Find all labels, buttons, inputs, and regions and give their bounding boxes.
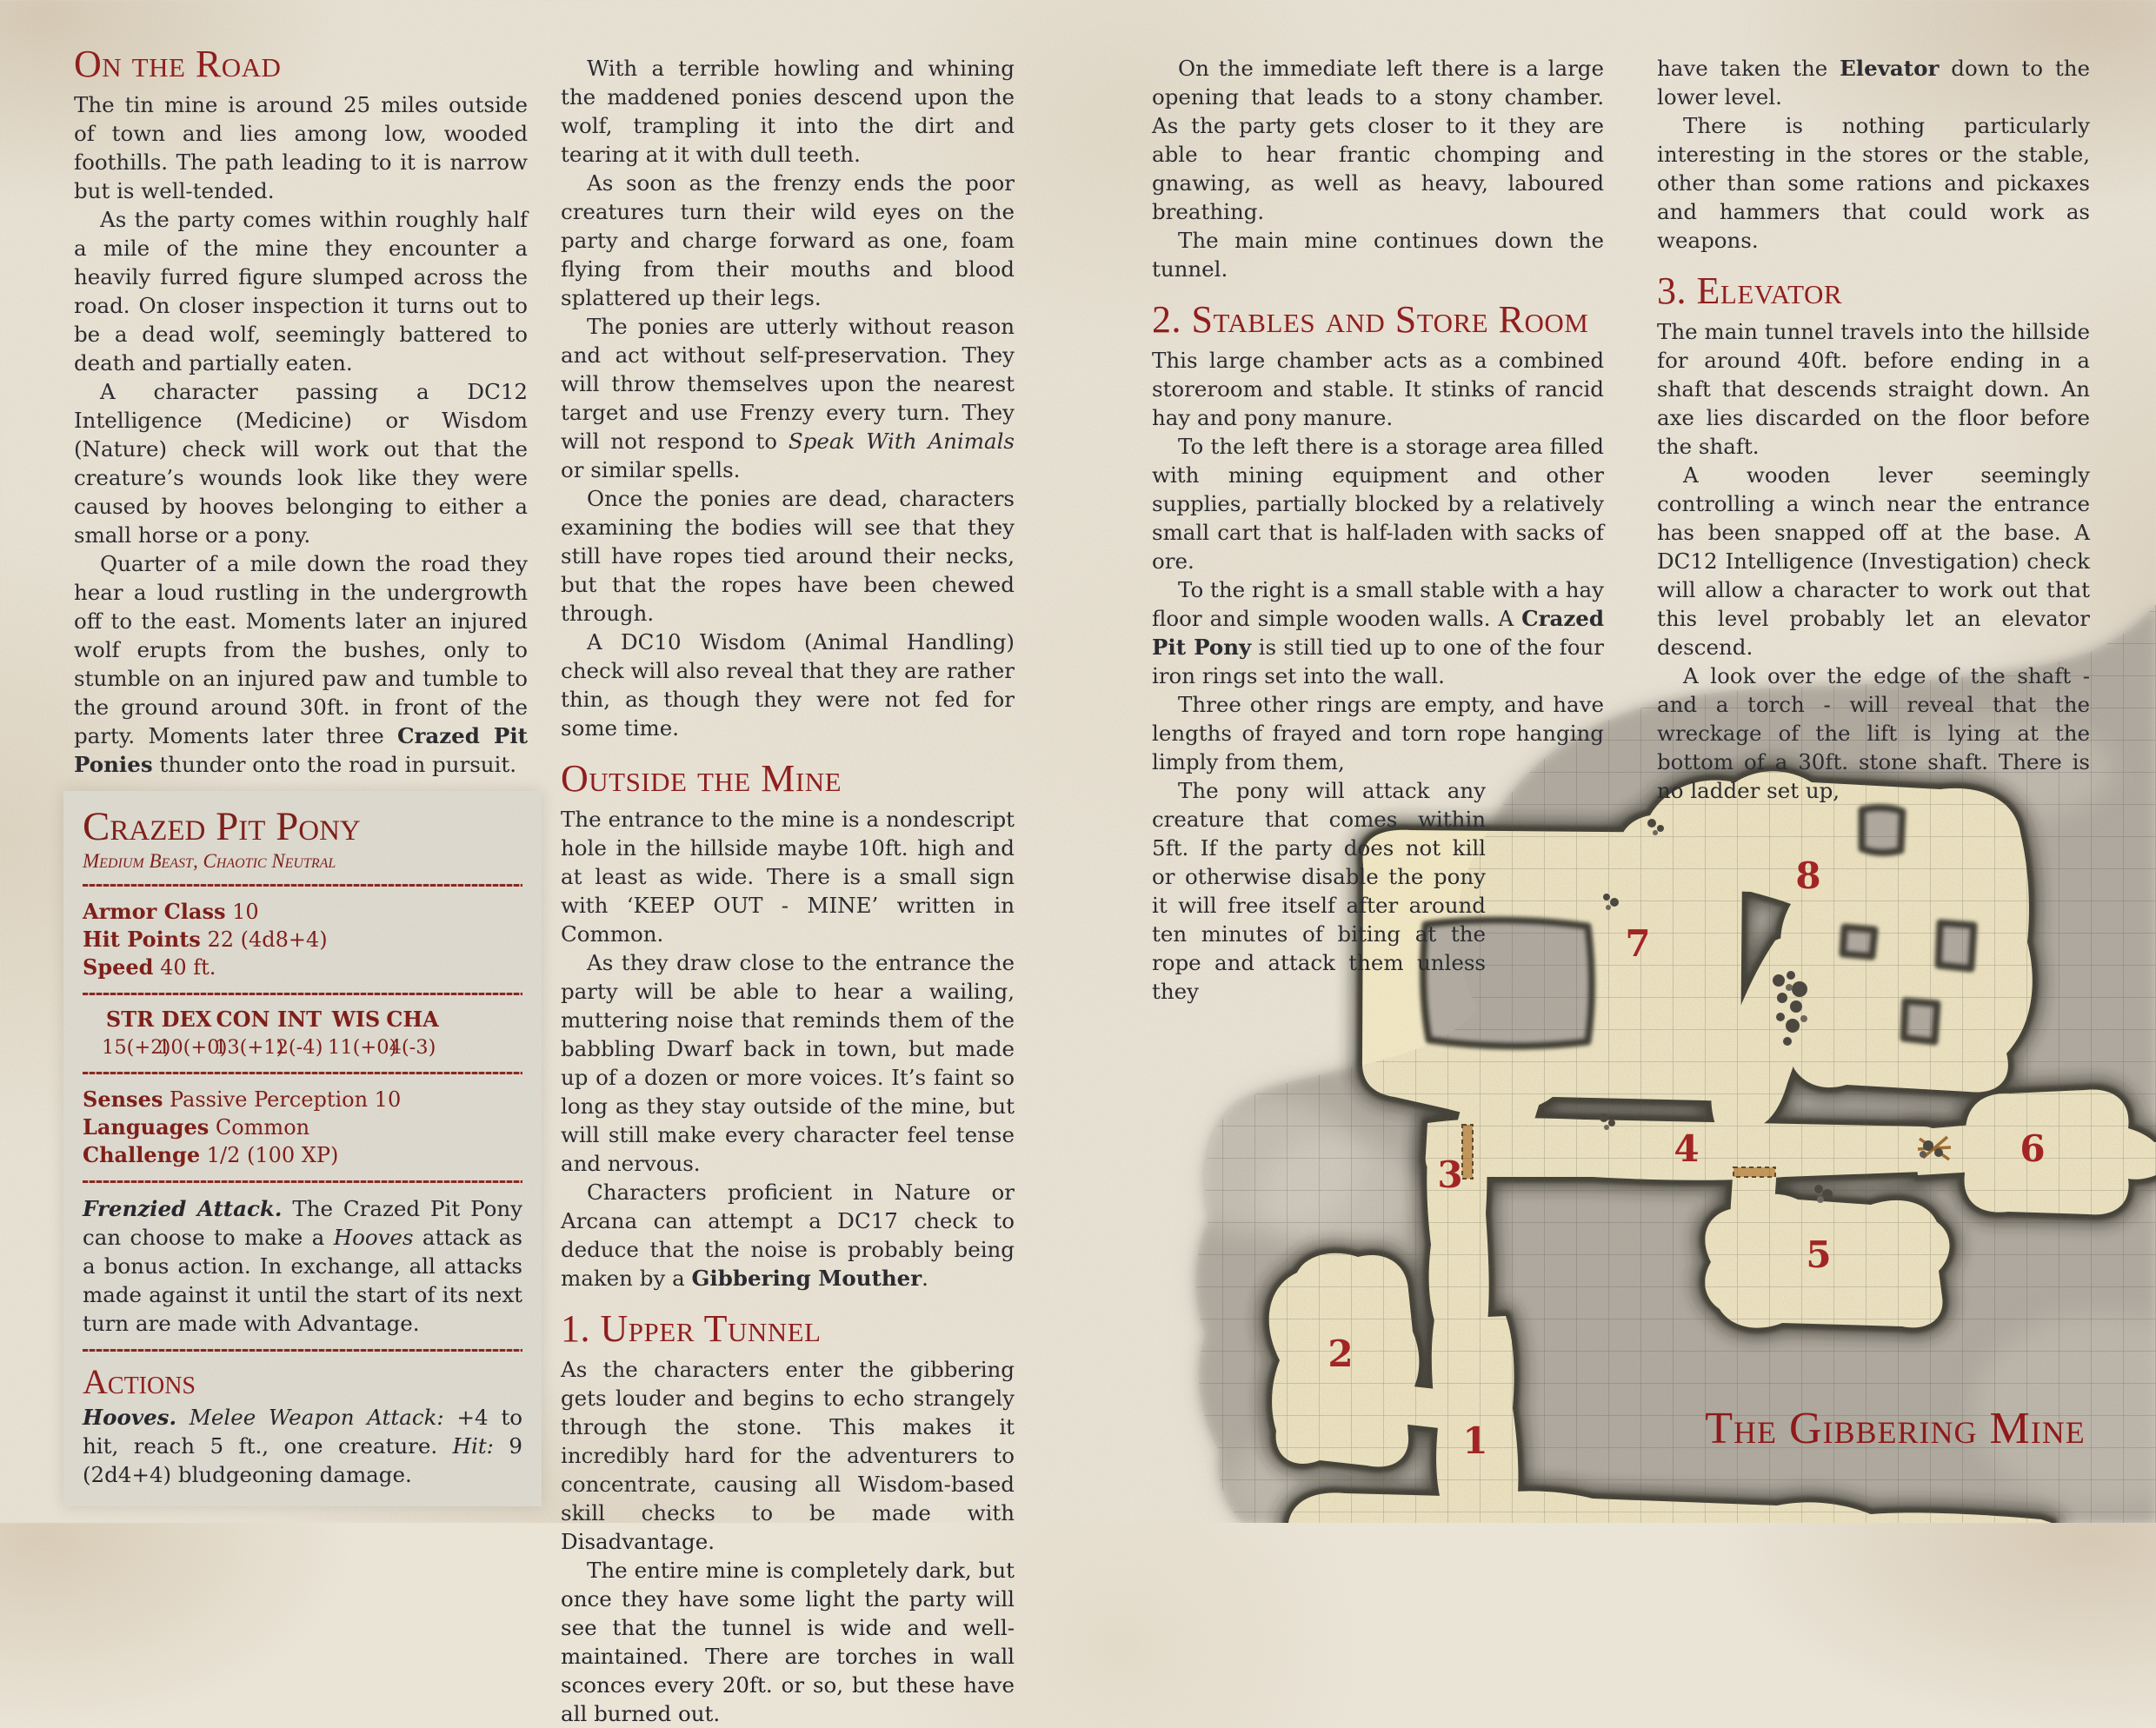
ability-con-label: CON (215, 1007, 271, 1033)
room-number-7: 7 (1625, 922, 1650, 965)
ability-str-value: 15(+2) (102, 1034, 158, 1060)
paragraph: With a terrible howling and whining the … (561, 54, 1015, 169)
paragraph: As the party comes within roughly half a… (74, 205, 528, 377)
ability-scores-header-row: STR DEX CON INT WIS CHA (102, 1007, 443, 1033)
stat-armor-class: Armor Class 10 (83, 898, 522, 926)
paragraph: A wooden lever seemingly controlling a w… (1657, 461, 2090, 661)
paragraph: have taken the Elevator down to the lowe… (1657, 54, 2090, 111)
stat-languages: Languages Common (83, 1113, 522, 1141)
divider (83, 1180, 522, 1183)
paragraph: On the immediate left there is a large o… (1152, 54, 1604, 226)
paragraph: As they draw close to the entrance the p… (561, 948, 1015, 1178)
paragraph: Characters proficient in Nature or Arcan… (561, 1178, 1015, 1293)
paragraph: As soon as the frenzy ends the poor crea… (561, 169, 1015, 312)
paragraph-narrow-wrap: The pony will attack any creature that c… (1152, 776, 1486, 1006)
room-number-3: 3 (1437, 1153, 1462, 1196)
section-heading-stables-store-room: 2. Stables and Store Room (1152, 299, 1604, 341)
divider (83, 884, 522, 887)
action-hooves: Hooves. Melee Weapon Attack: +4 to hit, … (83, 1403, 522, 1489)
stat-speed: Speed 40 ft. (83, 954, 522, 981)
paragraph: A look over the edge of the shaft - and … (1657, 661, 2090, 805)
room-number-1: 1 (1462, 1419, 1487, 1462)
stat-block-title: Crazed Pit Pony (83, 805, 522, 848)
paragraph: This large chamber acts as a combined st… (1152, 346, 1604, 432)
paragraph: A DC10 Wisdom (Animal Handling) check wi… (561, 628, 1015, 742)
paragraph: To the left there is a storage area fill… (1152, 432, 1604, 575)
column-4: have taken the Elevator down to the lowe… (1657, 54, 2090, 805)
paragraph: There is nothing particularly interestin… (1657, 111, 2090, 255)
paragraph: The main tunnel travels into the hillsid… (1657, 317, 2090, 461)
room-number-6: 6 (2020, 1127, 2045, 1170)
paragraph: To the right is a small stable with a ha… (1152, 575, 1604, 690)
room-number-2: 2 (1328, 1333, 1353, 1375)
paragraph: The tin mine is around 25 miles outside … (74, 90, 528, 205)
ability-cha-label: CHA (384, 1007, 441, 1033)
stat-hit-points: Hit Points 22 (4d8+4) (83, 926, 522, 954)
stat-block-subtitle: Medium Beast, Chaotic Neutral (83, 850, 522, 873)
ability-scores-value-row: 15(+2) 10(+0) 13(+1) 2(-4) 11(+0) 4(-3) (102, 1034, 443, 1060)
paragraph: Three other rings are empty, and have le… (1152, 690, 1604, 776)
section-heading-outside-the-mine: Outside the Mine (561, 758, 1015, 800)
stat-challenge: Challenge 1/2 (100 XP) (83, 1141, 522, 1169)
divider (83, 993, 522, 995)
paragraph: Once the ponies are dead, characters exa… (561, 484, 1015, 628)
ability-dex-value: 10(+0) (158, 1034, 215, 1060)
map-title: The Gibbering Mine (1705, 1404, 2086, 1453)
paragraph: The main mine continues down the tunnel. (1152, 226, 1604, 283)
ability-wis-value: 11(+0) (328, 1034, 384, 1060)
actions-heading: Actions (83, 1363, 522, 1401)
room-number-5: 5 (1806, 1233, 1831, 1276)
column-1: On the Road The tin mine is around 25 mi… (74, 43, 528, 1506)
paragraph: The ponies are utterly without reason an… (561, 312, 1015, 484)
stat-block-crazed-pit-pony: Crazed Pit Pony Medium Beast, Chaotic Ne… (63, 791, 542, 1506)
ability-cha-value: 4(-3) (384, 1034, 441, 1060)
ability-int-label: INT (271, 1007, 328, 1033)
ability-int-value: 2(-4) (271, 1034, 328, 1060)
divider (83, 1072, 522, 1074)
trait-frenzied-attack: Frenzied Attack. The Crazed Pit Pony can… (83, 1194, 522, 1338)
paragraph: A character passing a DC12 Intelligence … (74, 377, 528, 549)
paragraph: As the characters enter the gibbering ge… (561, 1355, 1015, 1556)
adventure-spread-page: { "colors": { "heading_red": "#8e1a1a", … (0, 0, 2156, 1523)
paragraph: The entrance to the mine is a nondescrip… (561, 805, 1015, 948)
divider (83, 1349, 522, 1352)
column-3: On the immediate left there is a large o… (1152, 54, 1604, 1006)
room-number-8: 8 (1795, 854, 1820, 897)
section-heading-on-the-road: On the Road (74, 43, 528, 85)
ability-wis-label: WIS (328, 1007, 384, 1033)
section-heading-elevator: 3. Elevator (1657, 270, 2090, 312)
paragraph: Quarter of a mile down the road they hea… (74, 549, 528, 779)
section-heading-upper-tunnel: 1. Upper Tunnel (561, 1308, 1015, 1350)
room-number-4: 4 (1674, 1127, 1699, 1170)
ability-con-value: 13(+1) (215, 1034, 271, 1060)
ability-str-label: STR (102, 1007, 158, 1033)
stat-senses: Senses Passive Perception 10 (83, 1086, 522, 1113)
ability-dex-label: DEX (158, 1007, 215, 1033)
column-2: With a terrible howling and whining the … (561, 54, 1015, 1728)
paragraph: The entire mine is completely dark, but … (561, 1556, 1015, 1728)
